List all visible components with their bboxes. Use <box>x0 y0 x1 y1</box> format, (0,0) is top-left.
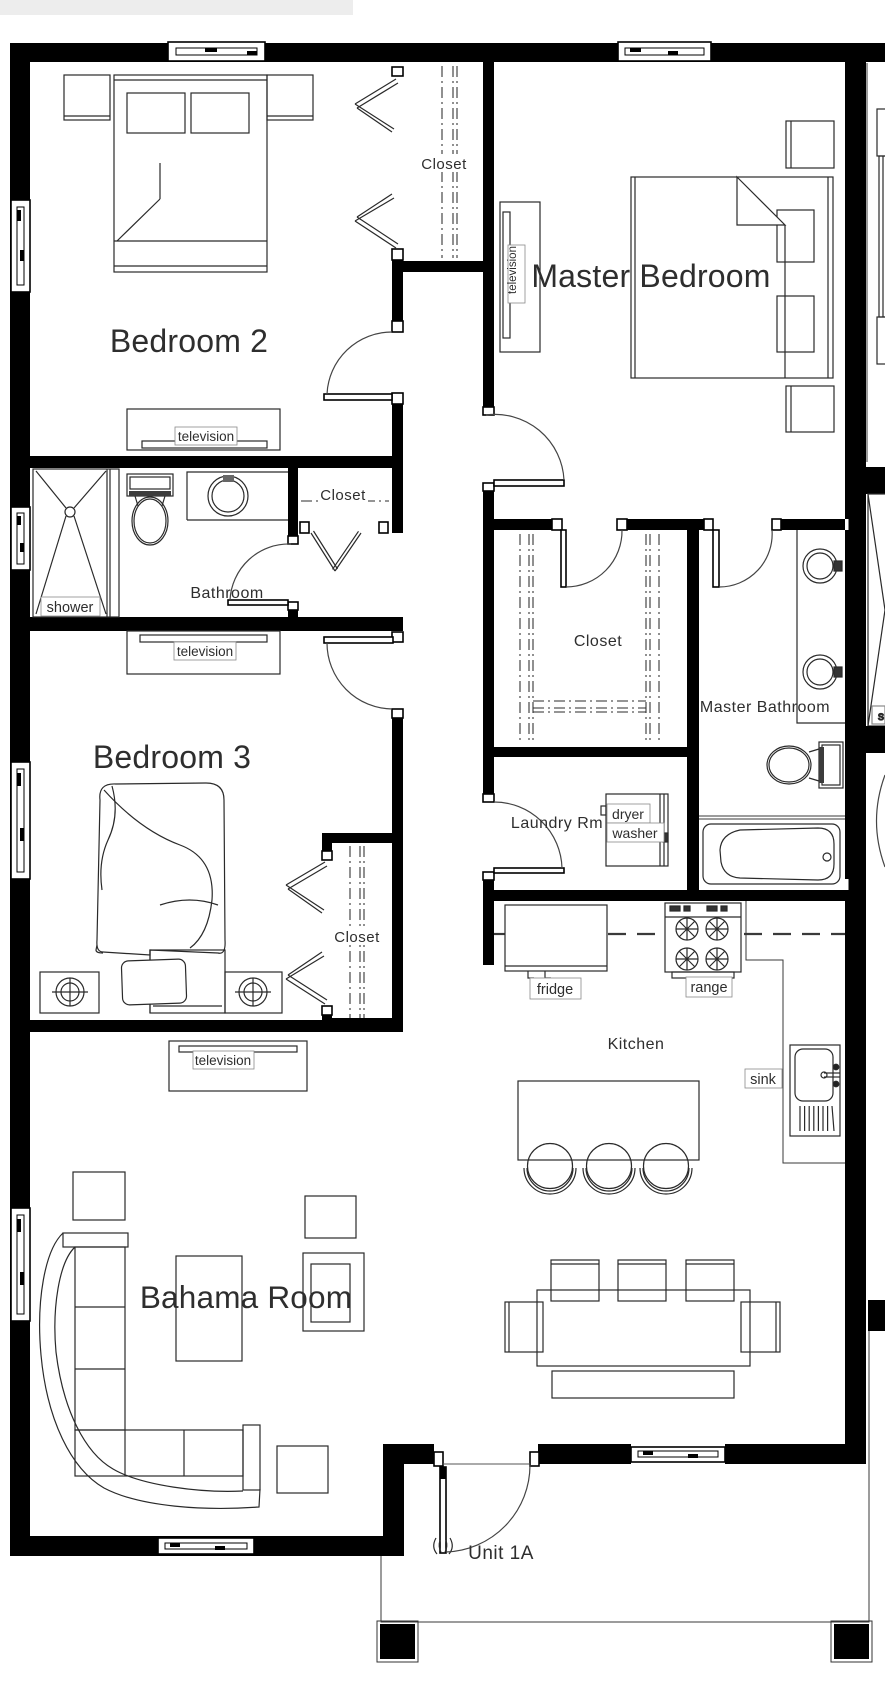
svg-text:Closet: Closet <box>574 633 622 650</box>
svg-text:Master Bathroom: Master Bathroom <box>700 699 830 716</box>
svg-text:s: s <box>878 709 884 723</box>
svg-text:television: television <box>507 246 519 294</box>
svg-text:Unit 1A: Unit 1A <box>468 1543 534 1564</box>
svg-text:Bedroom 3: Bedroom 3 <box>93 739 251 775</box>
svg-text:fridge: fridge <box>537 982 573 998</box>
svg-text:Kitchen: Kitchen <box>608 1036 665 1053</box>
svg-text:television: television <box>178 429 234 444</box>
svg-text:Laundry Rm: Laundry Rm <box>511 815 603 832</box>
svg-text:Closet: Closet <box>320 487 366 504</box>
svg-text:sink: sink <box>750 1072 777 1088</box>
svg-text:Master Bedroom: Master Bedroom <box>531 258 770 294</box>
svg-text:television: television <box>177 644 233 659</box>
svg-text:Closet: Closet <box>334 929 380 946</box>
svg-text:dryer: dryer <box>612 806 644 822</box>
svg-text:Closet: Closet <box>421 156 467 173</box>
svg-text:Bedroom 2: Bedroom 2 <box>110 323 268 359</box>
svg-text:washer: washer <box>611 825 657 841</box>
svg-text:television: television <box>195 1053 251 1068</box>
svg-text:Bahama Room: Bahama Room <box>140 1279 352 1315</box>
svg-text:shower: shower <box>47 600 94 616</box>
svg-text:range: range <box>690 980 727 996</box>
svg-text:Bathroom: Bathroom <box>190 585 263 602</box>
